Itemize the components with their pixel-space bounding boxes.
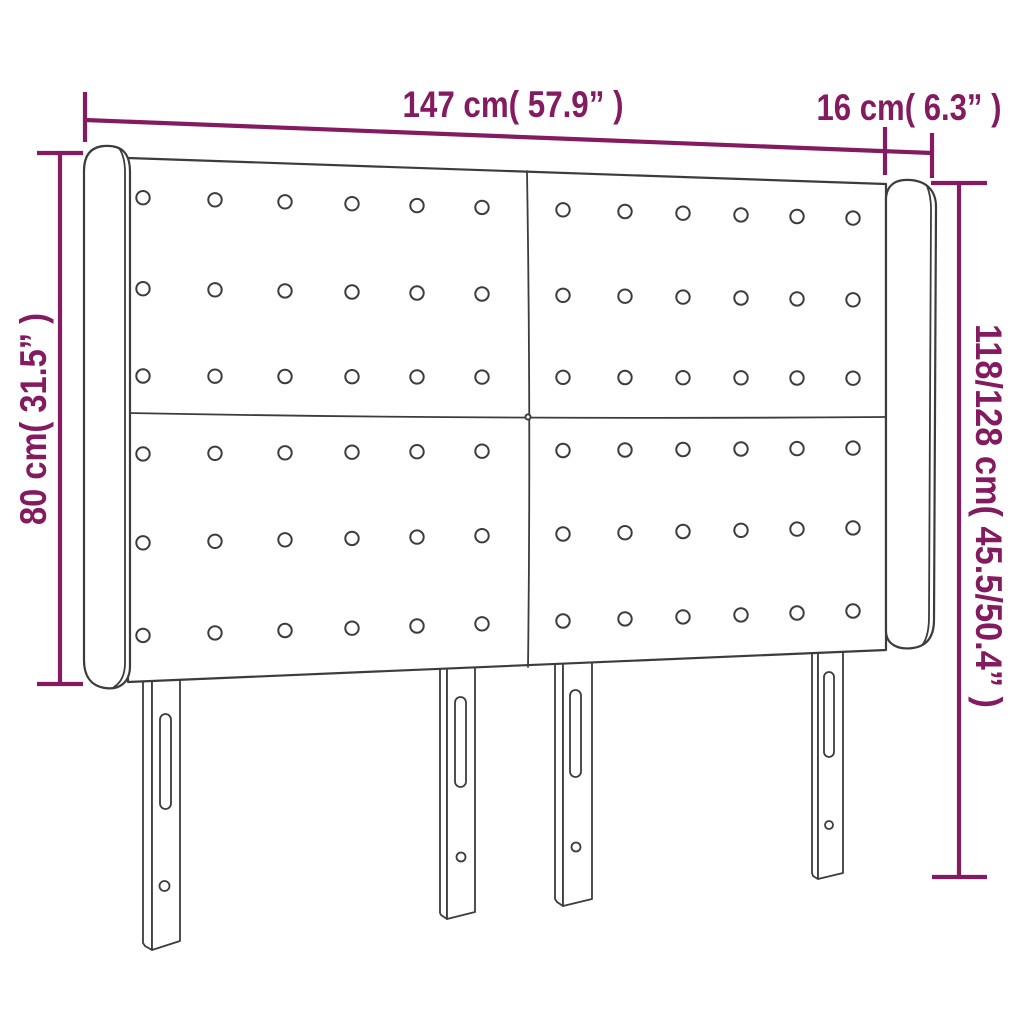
tufting-button bbox=[136, 447, 149, 460]
tufting-button bbox=[475, 287, 488, 300]
tufting-button bbox=[475, 529, 488, 542]
tufting-button bbox=[410, 370, 423, 383]
tufting-button bbox=[790, 210, 803, 223]
tufting-button bbox=[846, 604, 859, 617]
tufting-button bbox=[345, 370, 358, 383]
leg-hole bbox=[457, 853, 466, 862]
right-height-dimension: 118/128 cm( 45.5/50.4” ) bbox=[931, 183, 1009, 877]
tufting-button bbox=[208, 447, 221, 460]
tufting-button bbox=[846, 441, 859, 454]
left-height-label: 80 cm( 31.5” ) bbox=[13, 313, 54, 525]
tufting-button bbox=[676, 443, 689, 456]
tufting-button bbox=[278, 195, 291, 208]
tufting-button bbox=[618, 443, 631, 456]
leg-1 bbox=[143, 671, 180, 950]
tufting-button bbox=[790, 522, 803, 535]
tufting-button bbox=[136, 629, 149, 642]
tufting-button bbox=[618, 612, 631, 625]
tufting-button bbox=[345, 446, 358, 459]
tufting-button bbox=[846, 211, 859, 224]
tufting-button bbox=[410, 199, 423, 212]
tufting-button bbox=[556, 444, 569, 457]
tufting-button bbox=[410, 286, 423, 299]
leg-slot bbox=[824, 672, 834, 757]
right-height-label: 118/128 cm( 45.5/50.4” ) bbox=[968, 324, 1009, 708]
right-wing bbox=[886, 180, 936, 649]
tufting-button bbox=[676, 290, 689, 303]
tufting-button bbox=[676, 525, 689, 538]
tufting-button bbox=[345, 285, 358, 298]
left-height-dimension: 80 cm( 31.5” ) bbox=[13, 153, 83, 684]
tufting-button bbox=[345, 197, 358, 210]
tufting-button bbox=[345, 532, 358, 545]
tufting-button bbox=[208, 193, 221, 206]
headboard-panel bbox=[128, 158, 886, 682]
tufting-button bbox=[676, 610, 689, 623]
seam-center-bead bbox=[525, 414, 530, 419]
tufting-button bbox=[846, 521, 859, 534]
tufting-button bbox=[790, 606, 803, 619]
tufting-button bbox=[790, 442, 803, 455]
tufting-button bbox=[410, 445, 423, 458]
tufting-button bbox=[208, 370, 221, 383]
leg-slot bbox=[455, 697, 466, 787]
tufting-button bbox=[136, 282, 149, 295]
tufting-button bbox=[475, 370, 488, 383]
tufting-button bbox=[556, 614, 569, 627]
ear-width-label: 16 cm( 6.3” ) bbox=[817, 87, 1002, 128]
tufting-button bbox=[208, 626, 221, 639]
leg-hole bbox=[160, 881, 170, 891]
tufting-button bbox=[734, 608, 747, 621]
leg-3 bbox=[555, 651, 592, 906]
top-width-label: 147 cm( 57.9” ) bbox=[403, 84, 624, 125]
left-wing bbox=[84, 146, 130, 688]
tufting-button bbox=[475, 445, 488, 458]
tufting-button bbox=[278, 446, 291, 459]
tufting-button bbox=[136, 191, 149, 204]
tufting-button bbox=[136, 536, 149, 549]
tufting-button bbox=[618, 205, 631, 218]
tufting-button bbox=[136, 369, 149, 382]
leg-hole bbox=[825, 821, 833, 829]
tufting-button bbox=[278, 533, 291, 546]
leg-2 bbox=[440, 659, 475, 919]
tufting-button bbox=[556, 203, 569, 216]
tufting-button bbox=[734, 442, 747, 455]
tufting-button bbox=[556, 527, 569, 540]
tufting-button bbox=[208, 535, 221, 548]
tufting-button bbox=[410, 530, 423, 543]
headboard-diagram-canvas: 147 cm( 57.9” ) 16 cm( 6.3” ) 80 cm( 31.… bbox=[0, 0, 1024, 1024]
tufting-button bbox=[475, 617, 488, 630]
tufting-button bbox=[208, 283, 221, 296]
tufting-button bbox=[618, 371, 631, 384]
tufting-button bbox=[676, 207, 689, 220]
tufting-button bbox=[618, 290, 631, 303]
leg-slot bbox=[570, 690, 581, 777]
tufting-button bbox=[410, 619, 423, 632]
tufting-button bbox=[846, 372, 859, 385]
leg-slot bbox=[160, 714, 171, 809]
headboard-legs bbox=[143, 645, 843, 950]
tufting-button bbox=[556, 371, 569, 384]
dimension-diagram: 147 cm( 57.9” ) 16 cm( 6.3” ) 80 cm( 31.… bbox=[0, 0, 1024, 1024]
tufting-button bbox=[278, 624, 291, 637]
leg-hole bbox=[572, 843, 581, 852]
tufting-button bbox=[734, 208, 747, 221]
tufting-button bbox=[790, 292, 803, 305]
tufting-button bbox=[734, 524, 747, 537]
tufting-button bbox=[345, 622, 358, 635]
tufting-button bbox=[790, 371, 803, 384]
tufting-button bbox=[618, 526, 631, 539]
tufting-button bbox=[556, 289, 569, 302]
tufting-button bbox=[734, 291, 747, 304]
leg-4 bbox=[812, 645, 843, 879]
tufting-button bbox=[475, 201, 488, 214]
tufting-button bbox=[676, 371, 689, 384]
tufting-button bbox=[846, 293, 859, 306]
tufting-button bbox=[278, 284, 291, 297]
tufting-button bbox=[278, 370, 291, 383]
tufting-button bbox=[734, 371, 747, 384]
